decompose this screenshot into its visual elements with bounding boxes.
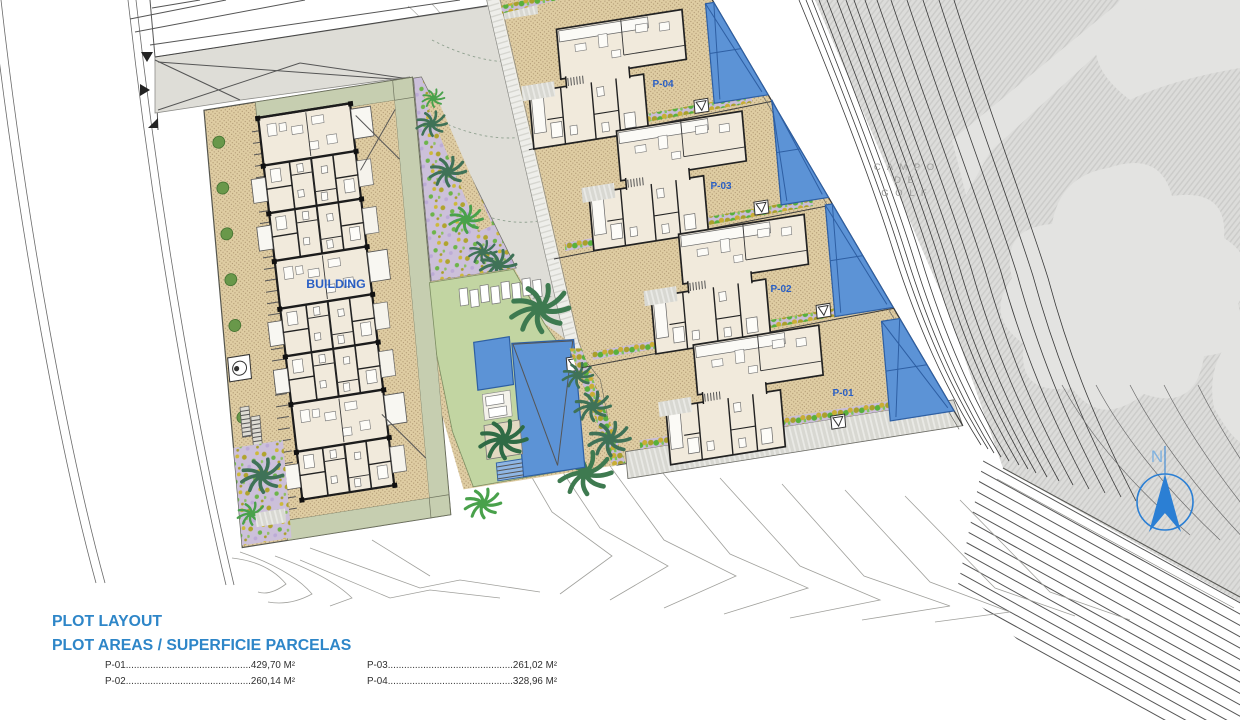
svg-text:P-04: P-04 [652,79,674,90]
svg-text:PLOT AREAS / SUPERFICIE PARCEL: PLOT AREAS / SUPERFICIE PARCELAS [52,637,351,654]
svg-text:BUILDING: BUILDING [306,277,365,291]
svg-text:P-04..........................: P-04....................................… [367,676,558,687]
svg-text:D E: D E [894,175,916,186]
svg-text:PLOT LAYOUT: PLOT LAYOUT [52,613,162,630]
svg-text:P-03: P-03 [710,181,732,192]
svg-text:P-03..........................: P-03....................................… [367,660,558,671]
svg-text:C A M P O: C A M P O [874,162,936,173]
svg-text:P-02..........................: P-02....................................… [105,676,296,687]
svg-text:G O L F: G O L F [881,188,928,199]
svg-text:P-02: P-02 [770,284,792,295]
svg-text:P-01..........................: P-01....................................… [105,660,296,671]
svg-text:P-01: P-01 [832,388,854,399]
svg-text:N: N [1151,447,1163,466]
